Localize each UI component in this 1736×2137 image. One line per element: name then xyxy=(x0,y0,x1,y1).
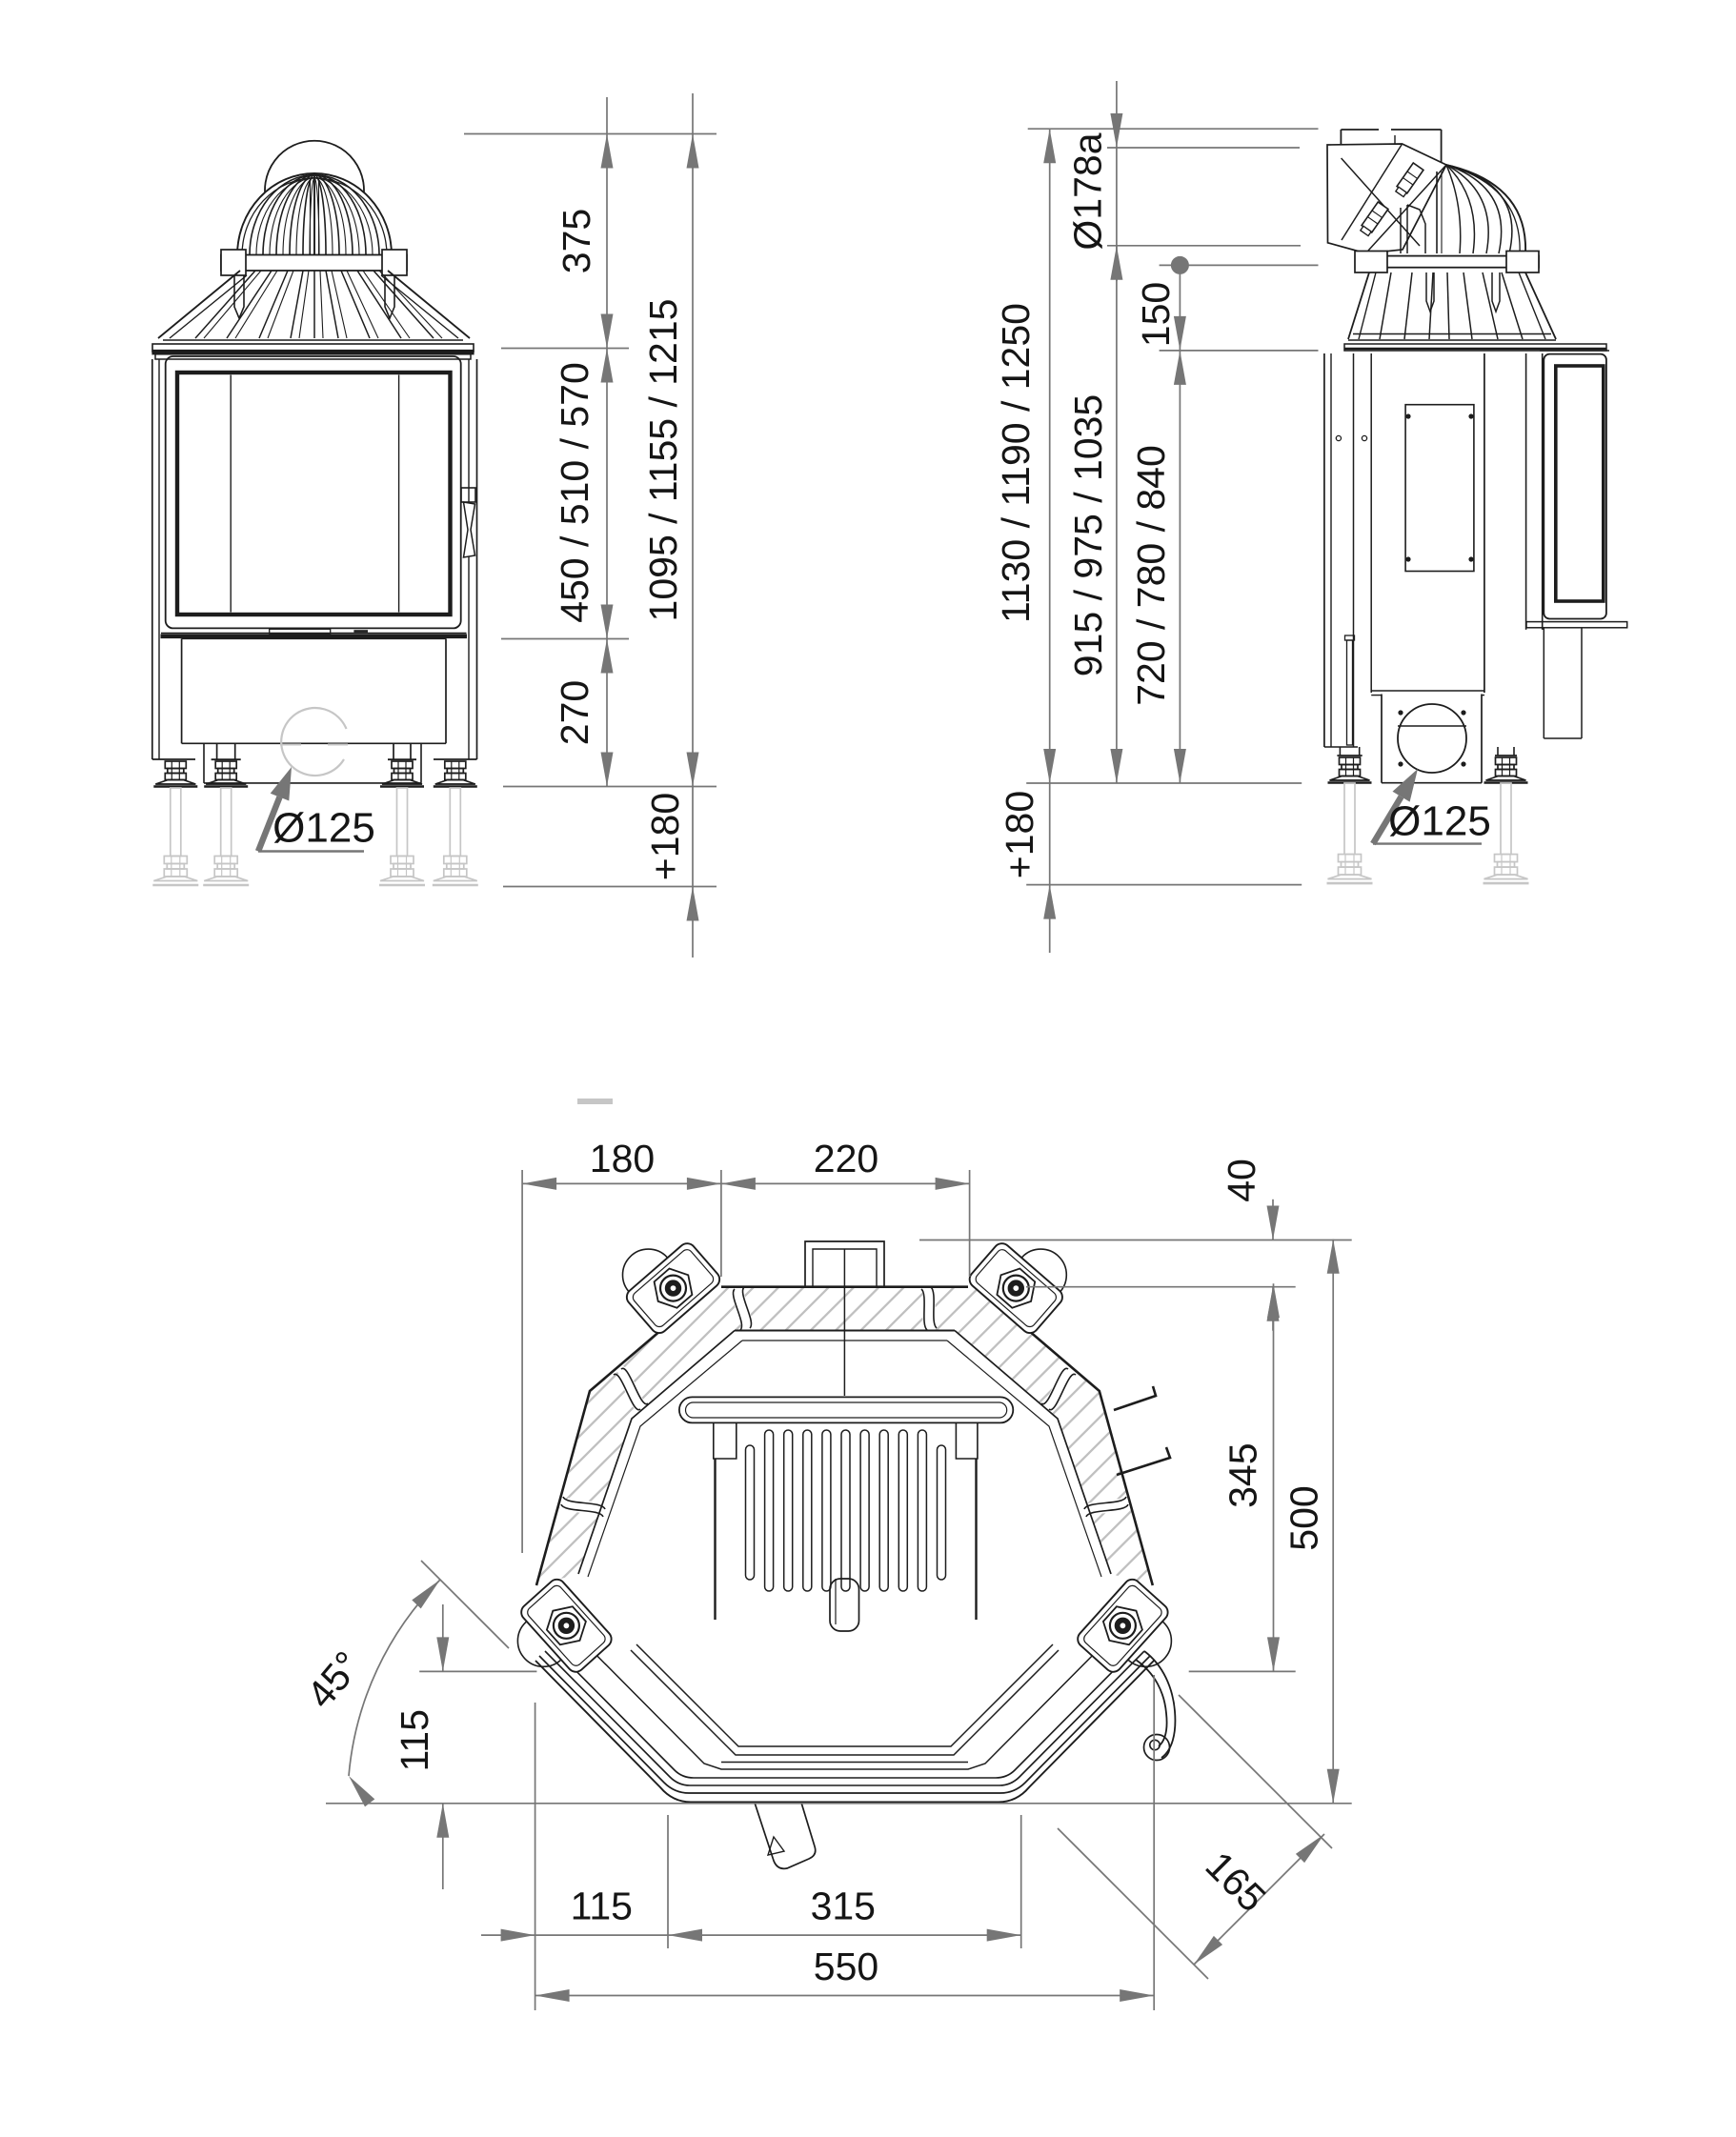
svg-text:270: 270 xyxy=(553,680,596,745)
svg-text:500: 500 xyxy=(1282,1485,1326,1550)
svg-text:1095 / 1155 / 1215: 1095 / 1155 / 1215 xyxy=(641,299,685,622)
svg-text:1130 / 1190 / 1250: 1130 / 1190 / 1250 xyxy=(994,303,1038,623)
svg-text:375: 375 xyxy=(555,209,598,273)
svg-text:450 / 510 / 570: 450 / 510 / 570 xyxy=(553,362,596,623)
svg-text:40: 40 xyxy=(1220,1159,1263,1202)
svg-text:Ø178a: Ø178a xyxy=(1066,132,1110,250)
svg-text:550: 550 xyxy=(814,1945,878,1988)
svg-text:180: 180 xyxy=(590,1137,655,1180)
svg-text:220: 220 xyxy=(814,1137,878,1180)
svg-text:345: 345 xyxy=(1221,1442,1265,1507)
svg-text:150: 150 xyxy=(1134,282,1178,347)
svg-text:915 / 975 / 1035: 915 / 975 / 1035 xyxy=(1066,394,1110,676)
svg-text:315: 315 xyxy=(811,1885,876,1928)
svg-text:+180: +180 xyxy=(998,791,1041,878)
svg-text:Ø125: Ø125 xyxy=(273,805,375,852)
svg-text:720 / 780 / 840: 720 / 780 / 840 xyxy=(1129,445,1173,706)
svg-text:Ø125: Ø125 xyxy=(1388,798,1491,845)
svg-text:+180: +180 xyxy=(643,793,687,880)
svg-text:115: 115 xyxy=(393,1709,436,1771)
svg-text:115: 115 xyxy=(571,1885,633,1928)
